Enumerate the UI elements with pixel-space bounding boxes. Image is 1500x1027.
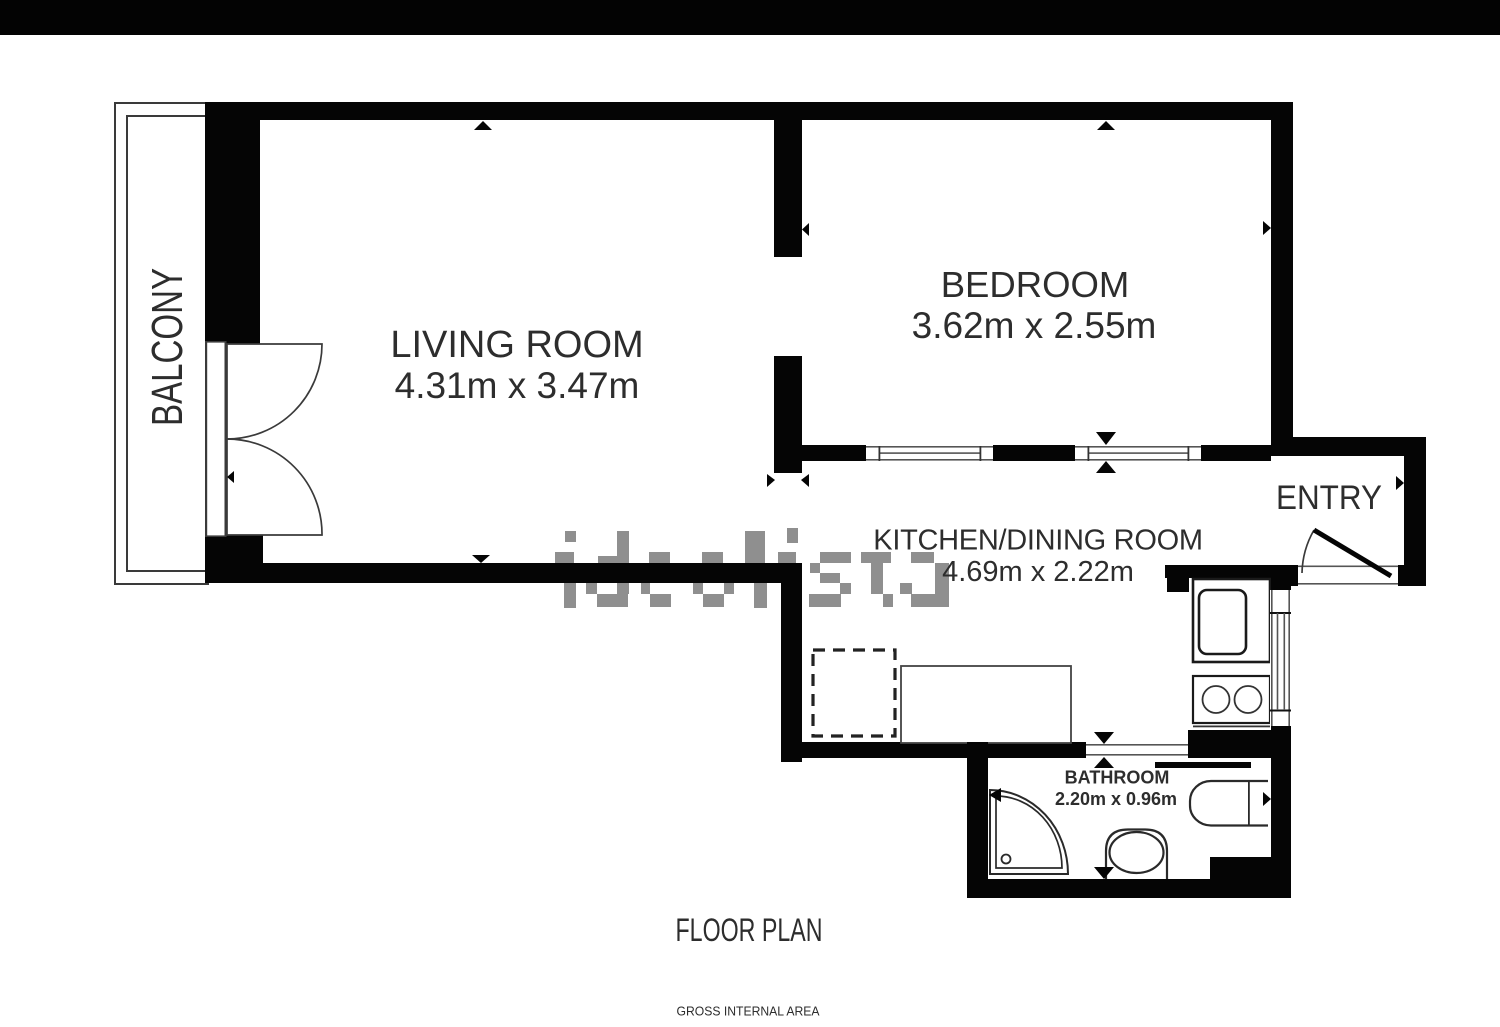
svg-text:2.20m x 0.96m: 2.20m x 0.96m xyxy=(1055,789,1177,809)
svg-text:3.62m x 2.55m: 3.62m x 2.55m xyxy=(912,305,1157,346)
svg-text:BEDROOM: BEDROOM xyxy=(941,264,1130,305)
svg-text:4.69m x 2.22m: 4.69m x 2.22m xyxy=(942,556,1134,588)
svg-text:LIVING ROOM: LIVING ROOM xyxy=(390,324,643,366)
svg-text:BATHROOM: BATHROOM xyxy=(1065,768,1170,788)
svg-text:ENTRY: ENTRY xyxy=(1276,479,1382,517)
svg-text:BALCONY: BALCONY xyxy=(143,268,192,426)
svg-text:KITCHEN/DINING ROOM: KITCHEN/DINING ROOM xyxy=(873,525,1202,557)
svg-text:FLOOR PLAN: FLOOR PLAN xyxy=(676,912,823,948)
svg-text:4.31m x 3.47m: 4.31m x 3.47m xyxy=(395,365,640,406)
svg-text:GROSS INTERNAL AREA: GROSS INTERNAL AREA xyxy=(677,1005,821,1019)
